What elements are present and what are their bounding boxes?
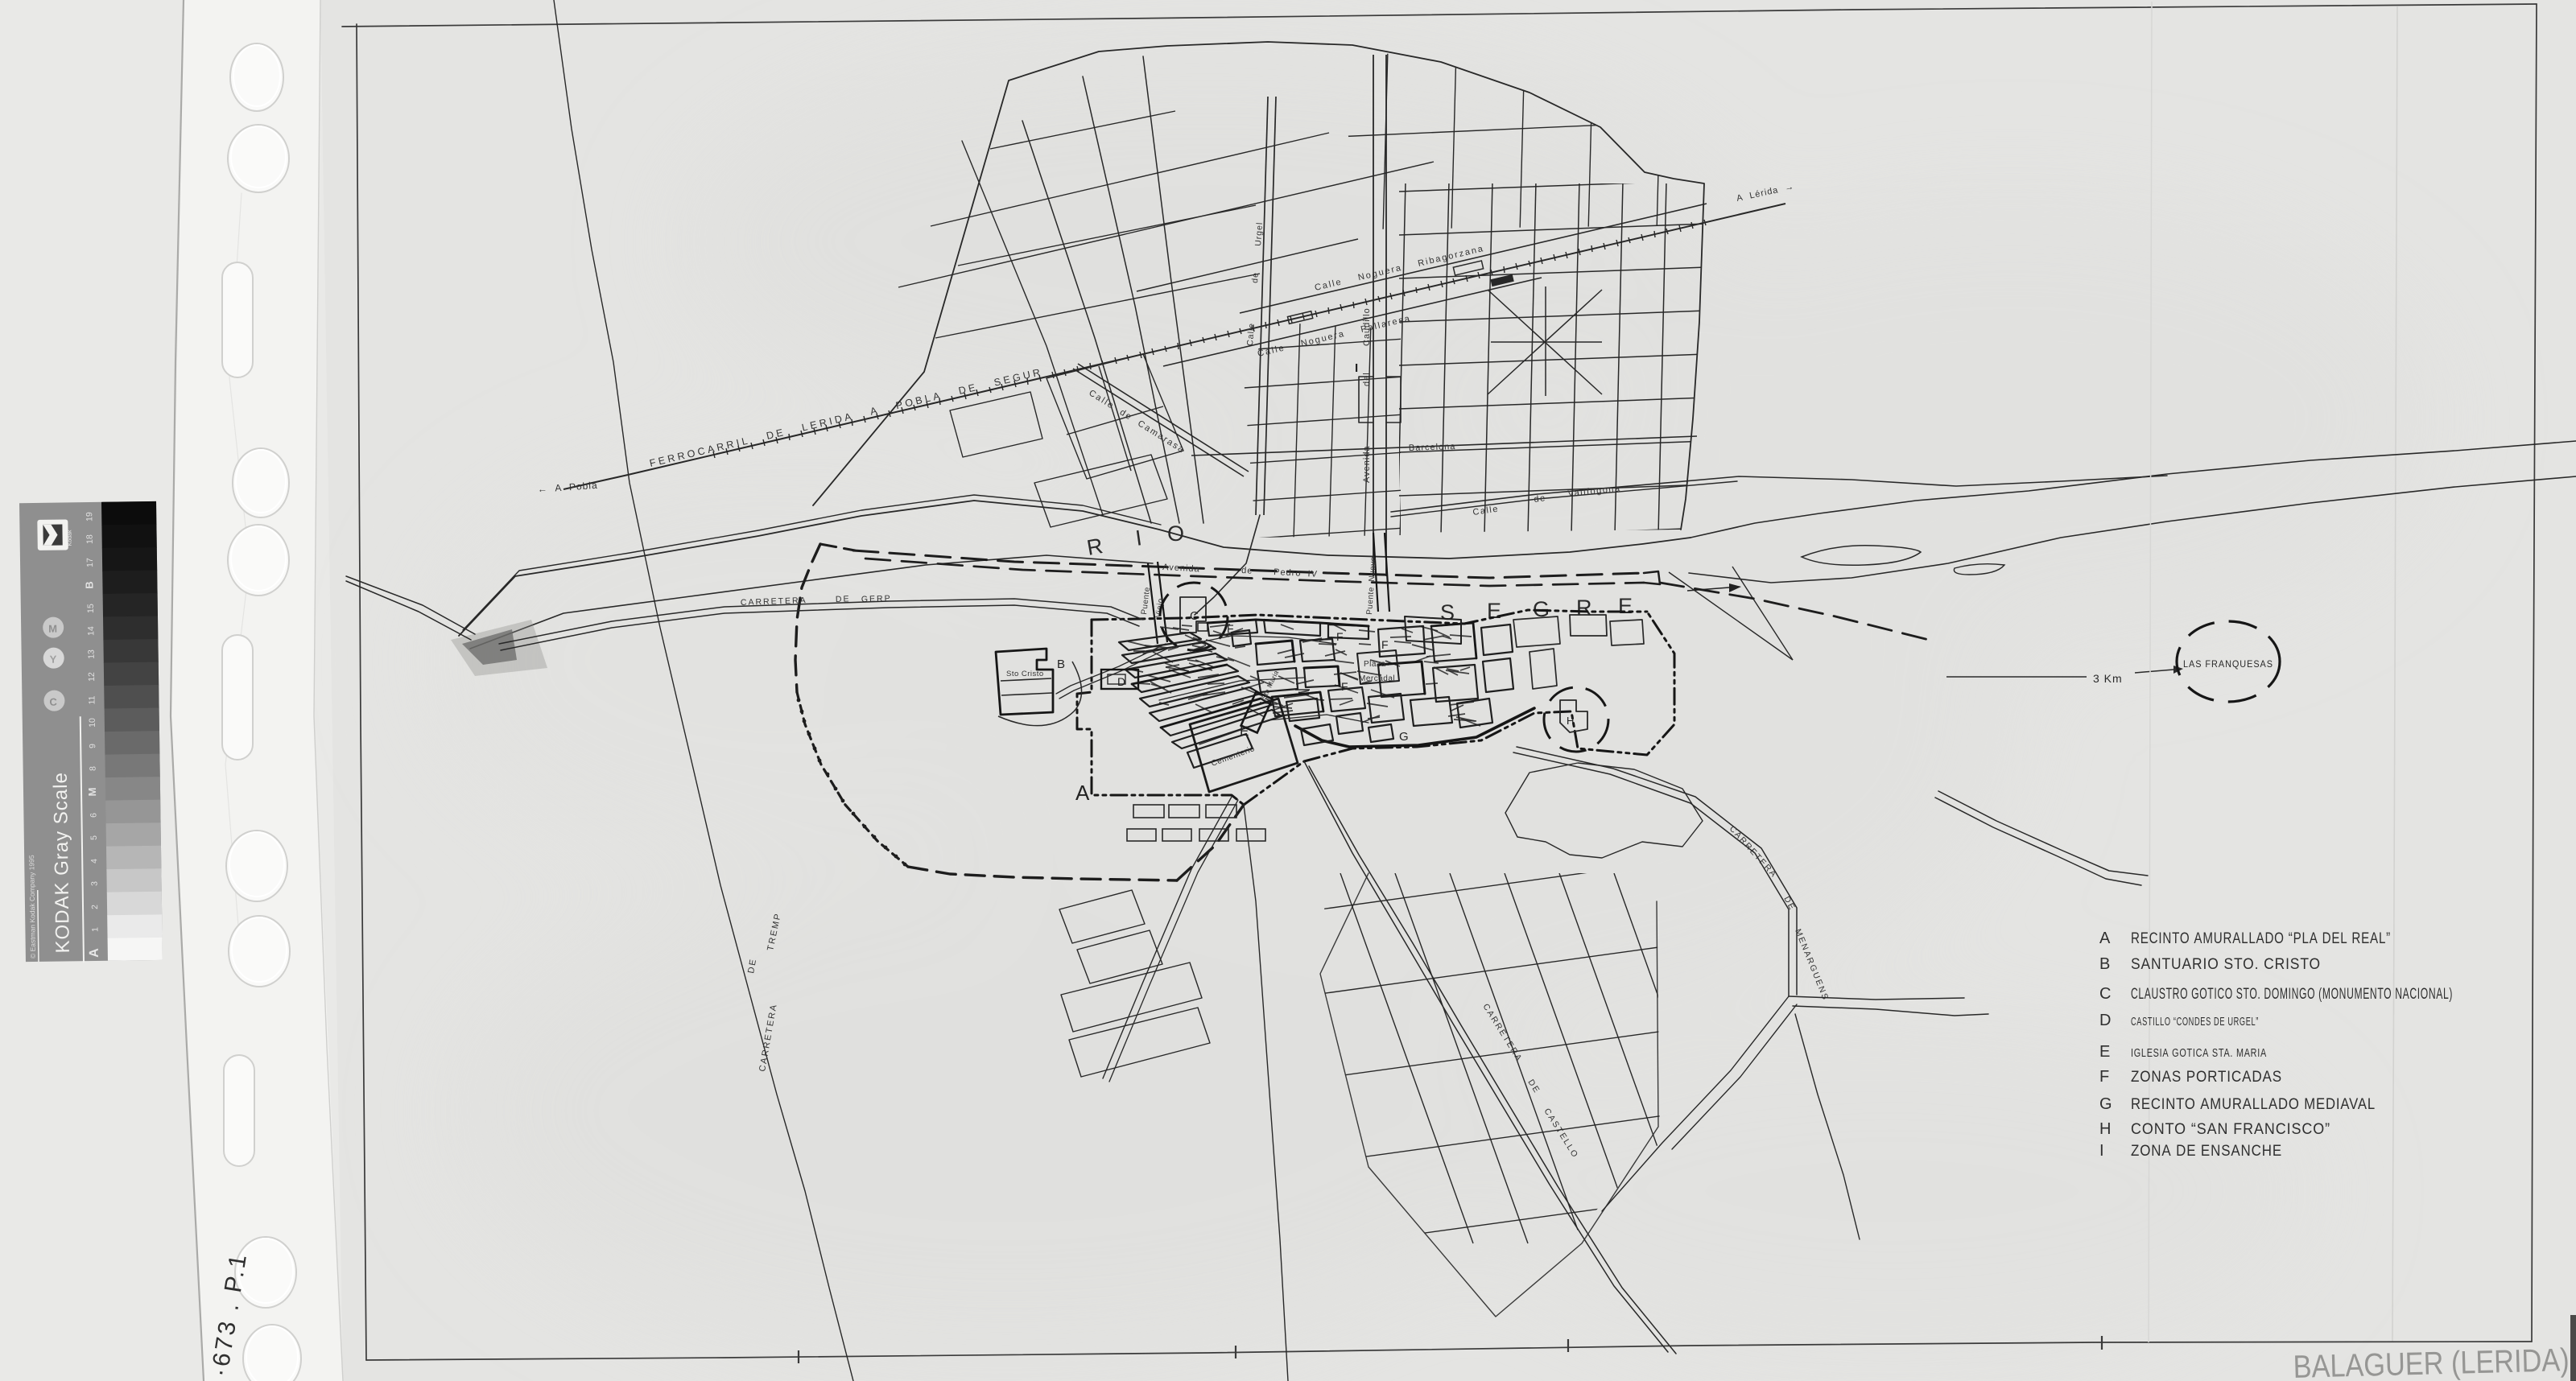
svg-text:B: B (83, 581, 95, 589)
svg-text:19: 19 (85, 512, 94, 521)
svg-text:12: 12 (87, 672, 97, 682)
svg-text:6: 6 (89, 813, 98, 818)
svg-text:Urgel: Urgel (1253, 221, 1265, 246)
svg-text:IGLESIA GOTICA STA. MARIA: IGLESIA GOTICA STA. MARIA (2131, 1047, 2267, 1060)
svg-text:H: H (2099, 1120, 2111, 1138)
svg-text:Kodak: Kodak (67, 530, 72, 546)
svg-text:8: 8 (89, 766, 98, 771)
svg-text:H: H (1567, 715, 1574, 727)
svg-text:CLAUSTRO GOTICO STO. DOMINGO (: CLAUSTRO GOTICO STO. DOMINGO (MONUMENTO … (2131, 985, 2453, 1003)
svg-text:F: F (1336, 630, 1344, 643)
svg-text:ZONAS PORTICADAS: ZONAS PORTICADAS (2131, 1068, 2282, 1086)
svg-text:E: E (1240, 723, 1249, 739)
svg-text:ZONA DE ENSANCHE: ZONA DE ENSANCHE (2131, 1142, 2282, 1160)
svg-text:S: S (1440, 600, 1455, 625)
svg-text:M: M (48, 623, 57, 635)
svg-text:17: 17 (85, 558, 95, 567)
svg-text:9: 9 (88, 744, 97, 748)
svg-text:3: 3 (90, 881, 100, 886)
svg-text:CONTO “SAN FRANCISCO”: CONTO “SAN FRANCISCO” (2131, 1120, 2330, 1138)
svg-text:E: E (1618, 594, 1633, 618)
svg-text:F: F (1381, 638, 1389, 651)
svg-text:I: I (1355, 361, 1358, 375)
svg-text:E: E (2099, 1043, 2110, 1061)
svg-text:M: M (86, 787, 98, 796)
svg-text:C: C (1190, 609, 1199, 623)
svg-text:Sto Cristo: Sto Cristo (1006, 670, 1044, 678)
svg-text:del: del (1362, 372, 1372, 386)
svg-text:F: F (1341, 680, 1348, 693)
svg-text:B: B (2099, 955, 2110, 973)
svg-text:11: 11 (87, 695, 97, 704)
svg-text:DE: DE (836, 594, 851, 604)
svg-text:Mercadal: Mercadal (1359, 674, 1395, 683)
svg-text:BALAGUER (LERIDA): BALAGUER (LERIDA) (2293, 1342, 2570, 1381)
svg-text:5: 5 (89, 835, 99, 840)
svg-text:Plaza: Plaza (1364, 660, 1386, 669)
svg-text:de: de (1241, 566, 1253, 576)
svg-text:Barcelona: Barcelona (1409, 442, 1456, 453)
svg-text:13: 13 (87, 649, 97, 659)
svg-text:B: B (1057, 658, 1065, 671)
svg-text:GERP: GERP (861, 594, 892, 604)
svg-text:A: A (88, 948, 101, 958)
svg-text:A: A (1075, 781, 1090, 805)
svg-text:Y: Y (50, 653, 57, 666)
svg-text:4: 4 (89, 859, 99, 864)
svg-text:18: 18 (85, 534, 95, 544)
svg-text:15: 15 (86, 604, 96, 613)
svg-text:C: C (2099, 985, 2111, 1003)
svg-text:R: R (1576, 596, 1592, 620)
svg-text:D: D (1117, 675, 1125, 688)
svg-text:10: 10 (88, 718, 97, 728)
svg-text:RECINTO AMURALLADO MEDIAVAL: RECINTO AMURALLADO MEDIAVAL (2131, 1095, 2376, 1113)
svg-text:O: O (1167, 521, 1184, 546)
svg-text:D: D (2099, 1012, 2111, 1029)
svg-text:RECINTO AMURALLADO “PLA DEL RE: RECINTO AMURALLADO “PLA DEL REAL” (2131, 930, 2391, 947)
svg-text:Avenida: Avenida (1162, 563, 1200, 574)
svg-text:3 Km: 3 Km (2093, 672, 2123, 685)
svg-text:C: C (49, 696, 57, 708)
svg-text:E: E (1487, 599, 1501, 623)
svg-text:Calle: Calle (1245, 323, 1257, 347)
svg-text:Caudillo: Caudillo (1362, 307, 1372, 346)
svg-text:14: 14 (86, 626, 96, 636)
svg-text:LAS FRANQUESAS: LAS FRANQUESAS (2183, 660, 2273, 670)
svg-text:Avenida: Avenida (1362, 445, 1372, 483)
svg-text:A: A (2099, 930, 2111, 947)
svg-text:F: F (2099, 1068, 2109, 1086)
svg-text:G: G (2099, 1095, 2112, 1113)
svg-text:2: 2 (90, 905, 100, 909)
svg-text:SANTUARIO STO. CRISTO: SANTUARIO STO. CRISTO (2131, 955, 2321, 973)
svg-text:G: G (1399, 730, 1409, 744)
svg-text:CASTILLO “CONDES DE URGEL”: CASTILLO “CONDES DE URGEL” (2131, 1016, 2259, 1029)
svg-text:I: I (2099, 1142, 2104, 1160)
svg-text:de: de (1250, 272, 1261, 283)
svg-text:KODAK Gray Scale: KODAK Gray Scale (50, 772, 74, 954)
svg-text:F: F (1227, 622, 1234, 635)
svg-text:© Eastman Kodak Company 1995: © Eastman Kodak Company 1995 (27, 855, 37, 958)
svg-text:1: 1 (90, 927, 100, 932)
svg-text:de: de (1534, 493, 1547, 505)
